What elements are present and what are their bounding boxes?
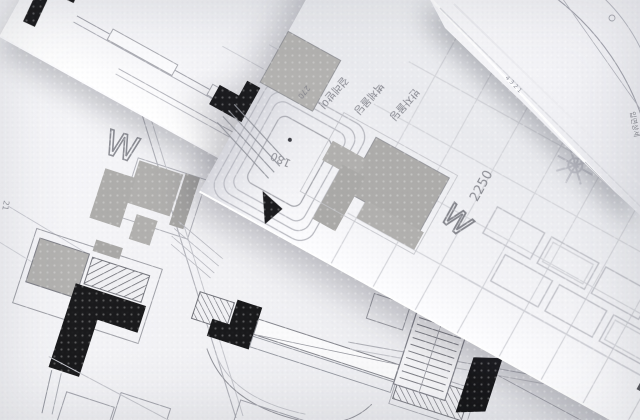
w-letter-mid: W — [433, 198, 479, 244]
svg-text:벽체몰딩: 벽체몰딩 — [351, 80, 386, 117]
w-letter-left: W — [99, 123, 143, 171]
dim-2250-label: 2250 — [467, 168, 496, 204]
blueprint-photo: 21 W — [0, 0, 640, 420]
hatch-patch — [163, 221, 230, 280]
svg-text:반자몰딩: 반자몰딩 — [387, 86, 422, 123]
dim-21-label: 21 — [0, 200, 11, 212]
corner-column-symbol — [20, 0, 82, 40]
